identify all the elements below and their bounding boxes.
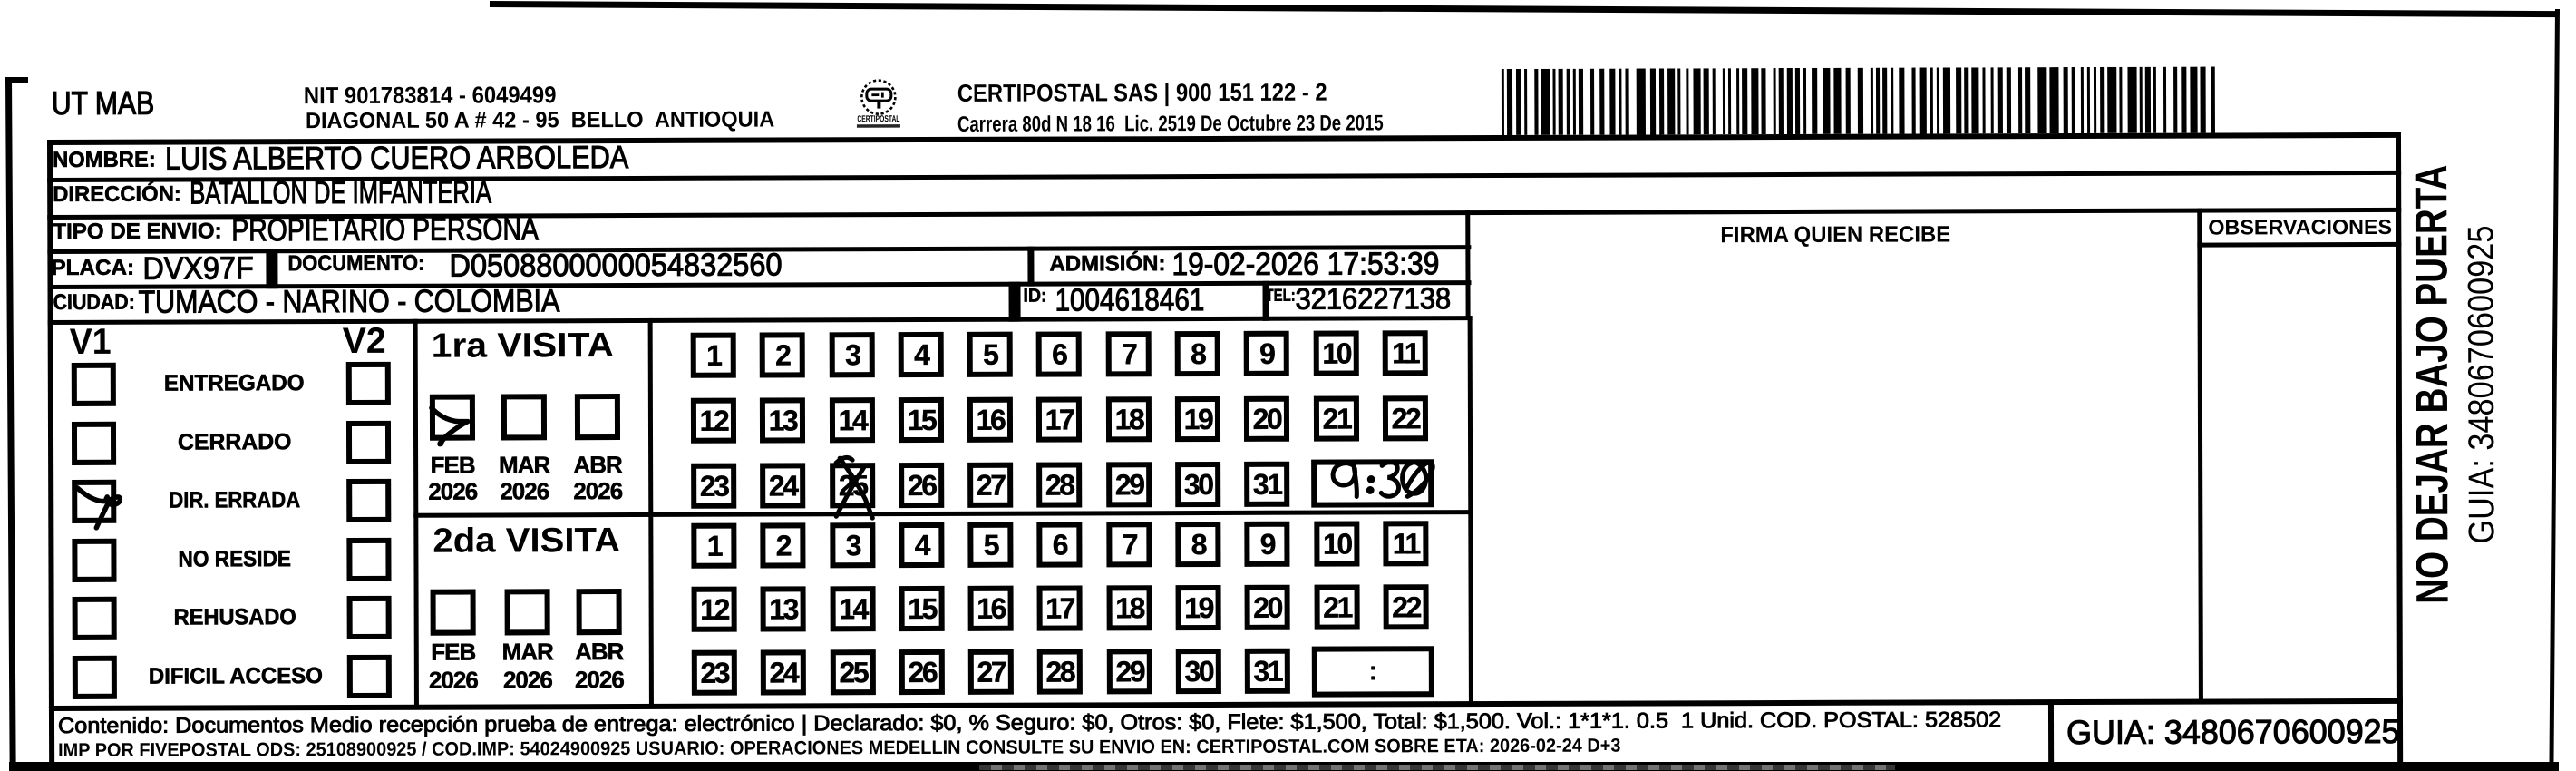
svg-text:NO DEJAR BAJO PUERTA: NO DEJAR BAJO PUERTA bbox=[2406, 165, 2458, 604]
svg-text:GUIA: 3480670600925: GUIA: 3480670600925 bbox=[2461, 226, 2502, 544]
